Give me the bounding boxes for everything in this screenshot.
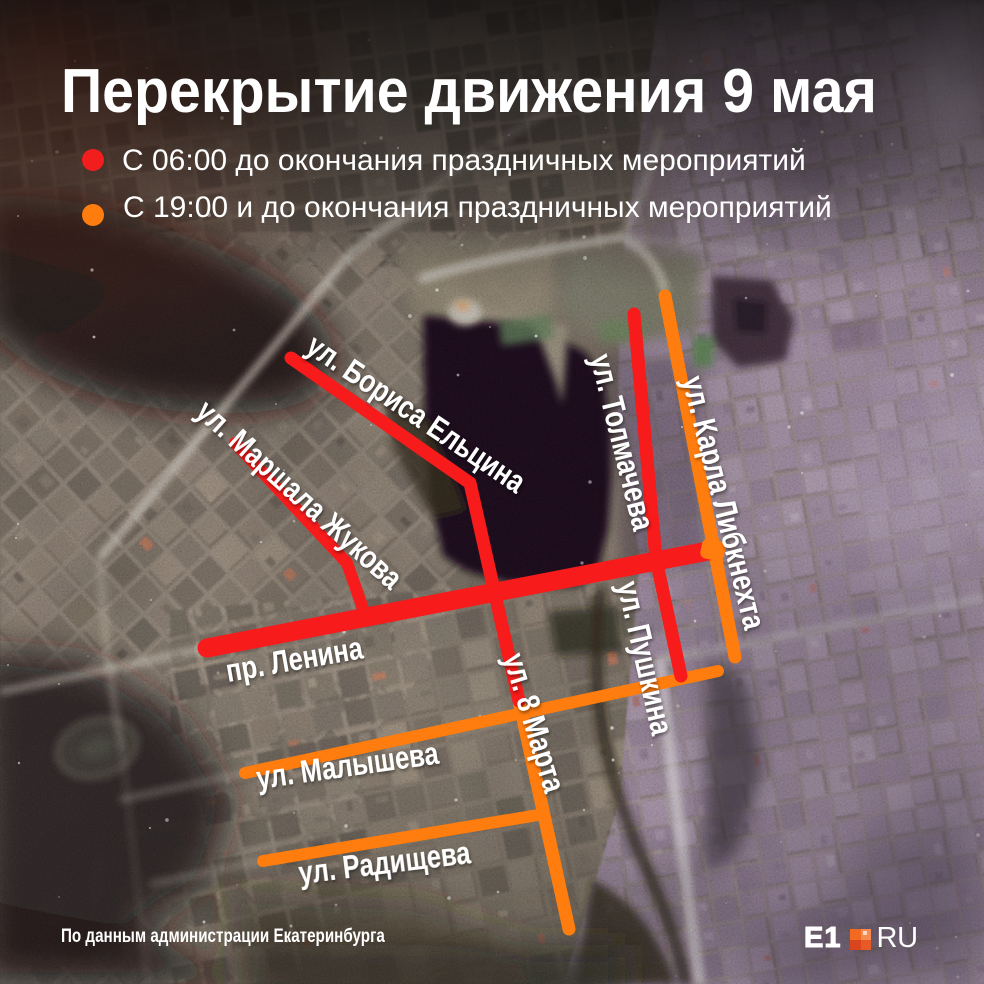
svg-text:ул. Бориса Ельцина: ул. Бориса Ельцина (300, 328, 533, 501)
svg-text:ул. 8 Марта: ул. 8 Марта (496, 649, 572, 797)
